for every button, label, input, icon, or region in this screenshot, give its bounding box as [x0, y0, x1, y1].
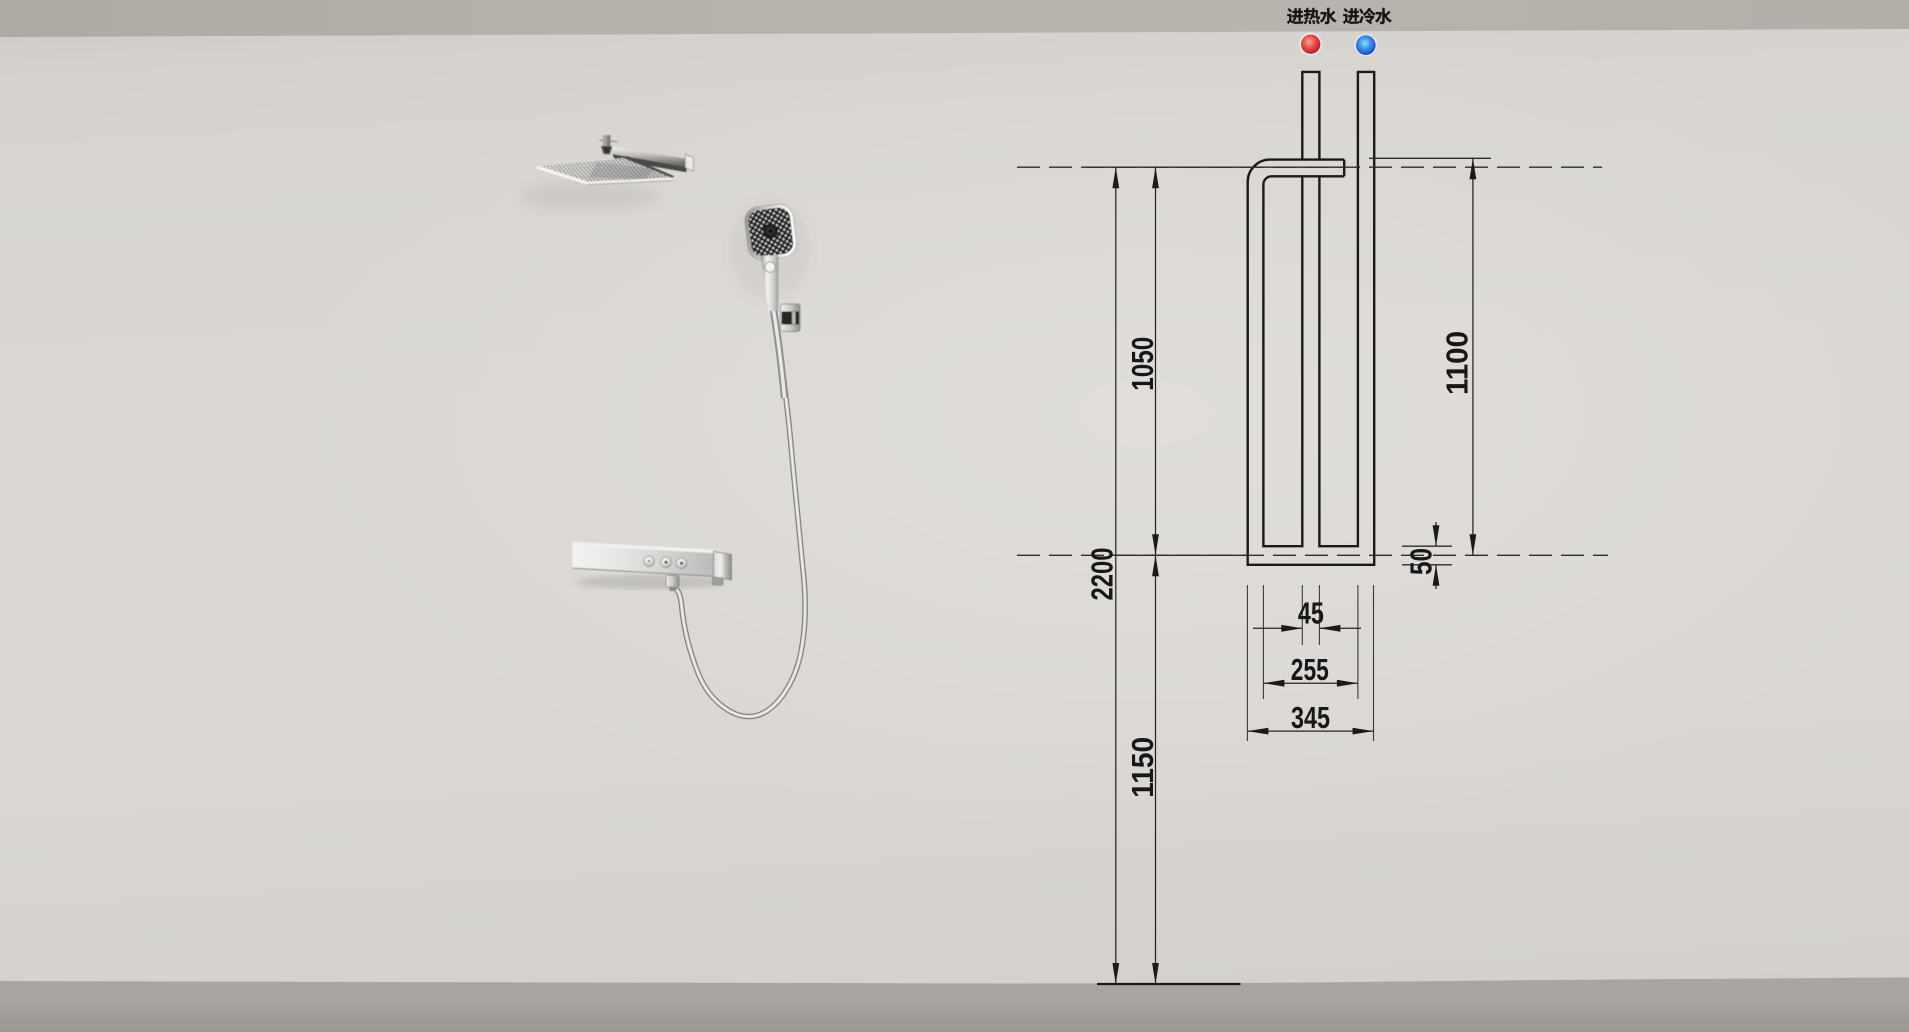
- svg-text:45: 45: [1298, 595, 1324, 630]
- svg-text:255: 255: [1291, 652, 1329, 687]
- svg-text:1150: 1150: [1125, 737, 1160, 798]
- svg-text:1050: 1050: [1125, 337, 1160, 391]
- svg-text:1100: 1100: [1440, 331, 1475, 395]
- svg-text:50: 50: [1404, 548, 1439, 575]
- svg-text:345: 345: [1291, 700, 1330, 735]
- svg-text:2200: 2200: [1085, 548, 1120, 601]
